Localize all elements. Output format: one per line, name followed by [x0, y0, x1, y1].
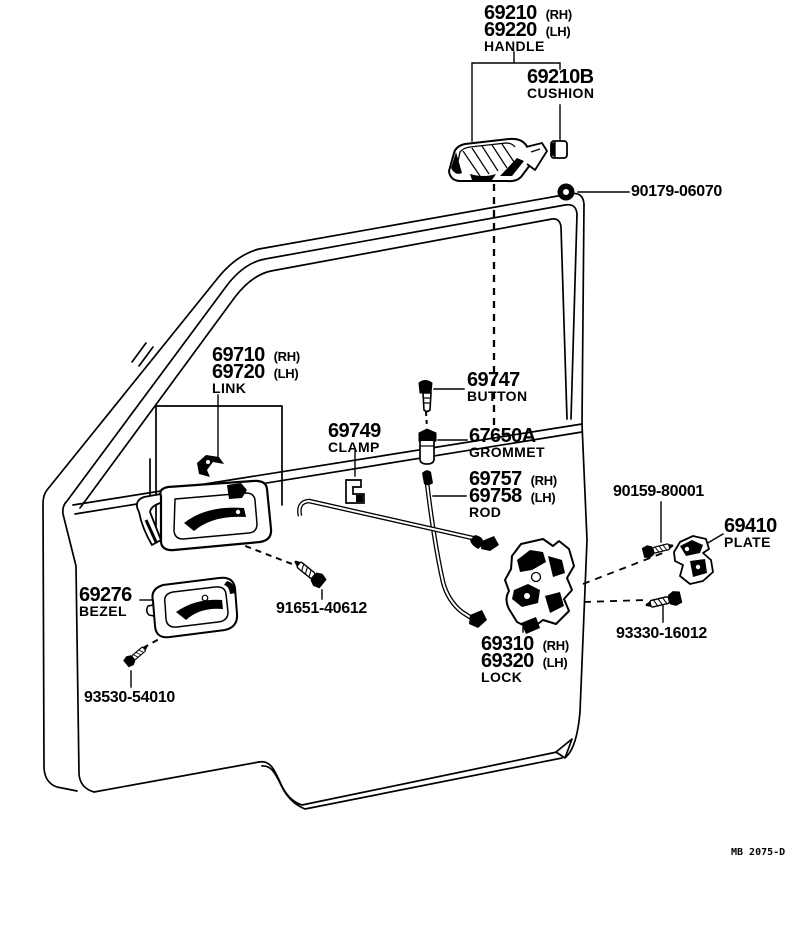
- part-number: 69276: [79, 585, 132, 605]
- part-name: LINK: [212, 381, 300, 395]
- label-link: 69710(RH) 69720(LH) LINK: [212, 345, 300, 395]
- part-name: HANDLE: [484, 39, 572, 53]
- part-qualifier: (LH): [274, 367, 299, 380]
- part-name: BEZEL: [79, 604, 132, 618]
- part-number: 91651-40612: [276, 600, 367, 617]
- label-plate-screw: 90159-80001: [613, 484, 704, 500]
- figure-code: MB 2075-D: [731, 847, 785, 858]
- part-name: LOCK: [481, 670, 569, 684]
- part-qualifier: (LH): [543, 656, 568, 669]
- part-qualifier: (RH): [274, 350, 300, 363]
- plate-drawing: [674, 536, 713, 584]
- part-number: 69410: [724, 516, 777, 536]
- part-qualifier: (RH): [543, 639, 569, 652]
- part-number: 90179-06070: [631, 183, 722, 200]
- label-clamp: 69749 CLAMP: [328, 421, 381, 454]
- outside-handle-drawing: [449, 139, 547, 181]
- part-name: CUSHION: [527, 86, 594, 100]
- part-number: 93330-16012: [616, 625, 707, 642]
- part-qualifier: (LH): [531, 491, 556, 504]
- part-number: 69220: [484, 20, 537, 40]
- screw-90159-drawing: [641, 539, 674, 559]
- handle-nut-drawing: [558, 184, 575, 201]
- link-clip-drawing: [197, 455, 224, 477]
- grommet-drawing: [419, 429, 436, 464]
- label-lock-screw: 93330-16012: [616, 626, 707, 642]
- rod-drawing: [422, 470, 473, 619]
- part-number: 69720: [212, 362, 265, 382]
- label-rod: 69757(RH) 69758(LH) ROD: [469, 469, 557, 519]
- door-line-art: [0, 0, 800, 926]
- part-number: 69320: [481, 651, 534, 671]
- part-qualifier: (RH): [531, 474, 557, 487]
- part-name: BUTTON: [467, 389, 527, 403]
- label-plate: 69410 PLATE: [724, 516, 777, 549]
- label-handle: 69210(RH) 69220(LH) HANDLE: [484, 3, 572, 53]
- parts-diagram-page: 69210(RH) 69220(LH) HANDLE 69210B CUSHIO…: [0, 0, 800, 926]
- label-bezel: 69276 BEZEL: [79, 585, 132, 618]
- part-number: 93530-54010: [84, 689, 175, 706]
- label-bezel-screw: 93530-54010: [84, 690, 175, 706]
- part-number: 69747: [467, 370, 520, 390]
- part-number: 67650A: [469, 426, 535, 446]
- part-number: 69749: [328, 421, 381, 441]
- label-button: 69747 BUTTON: [467, 370, 527, 403]
- cushion-drawing: [551, 141, 567, 158]
- label-link-screw: 91651-40612: [276, 601, 367, 617]
- label-grommet: 67650A GROMMET: [469, 426, 545, 459]
- clamp-drawing: [346, 480, 364, 503]
- screw-93530-drawing: [122, 642, 150, 668]
- button-drawing: [419, 381, 432, 412]
- part-name: ROD: [469, 505, 557, 519]
- part-number: 69210B: [527, 67, 593, 87]
- part-number: 90159-80001: [613, 483, 704, 500]
- part-name: PLATE: [724, 535, 777, 549]
- lock-drawing: [469, 536, 574, 634]
- part-qualifier: (LH): [546, 25, 571, 38]
- connecting-rod-drawing: [299, 501, 483, 549]
- bezel-drawing: [147, 578, 237, 638]
- label-cushion: 69210B CUSHION: [527, 67, 594, 100]
- assembly-dashed-lines: [143, 151, 668, 648]
- label-handle-nut: 90179-06070: [631, 184, 722, 200]
- part-qualifier: (RH): [546, 8, 572, 21]
- part-name: GROMMET: [469, 445, 545, 459]
- part-number: 69758: [469, 486, 522, 506]
- part-name: CLAMP: [328, 440, 381, 454]
- screw-91651-drawing: [290, 555, 328, 590]
- label-lock: 69310(RH) 69320(LH) LOCK: [481, 634, 569, 684]
